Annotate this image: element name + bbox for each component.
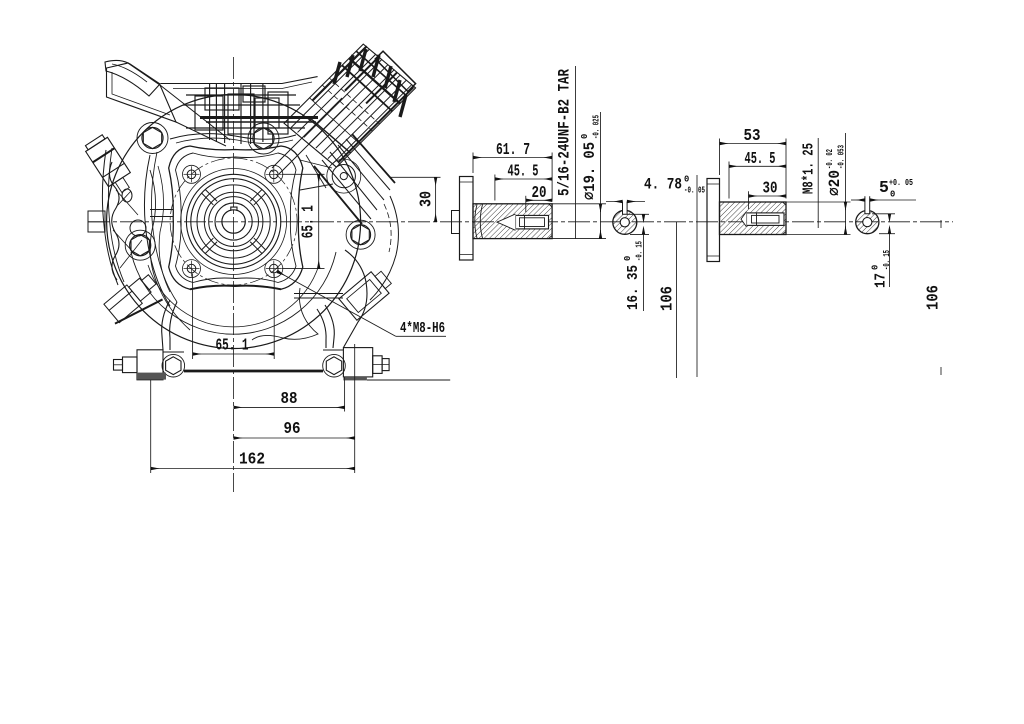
svg-text:5/16-24UNF-B2 TAR: 5/16-24UNF-B2 TAR: [556, 69, 574, 196]
svg-text:-0. 15: -0. 15: [635, 241, 645, 261]
svg-text:96: 96: [284, 419, 301, 438]
svg-text:-0. 053: -0. 053: [837, 145, 847, 169]
svg-text:0: 0: [580, 134, 590, 139]
svg-text:17: 17: [873, 273, 890, 288]
svg-text:0: 0: [623, 256, 633, 261]
svg-text:106: 106: [924, 285, 943, 310]
svg-text:45. 5: 45. 5: [745, 149, 776, 168]
svg-text:-0. 02: -0. 02: [825, 149, 835, 169]
svg-text:30: 30: [418, 191, 437, 207]
svg-text:⌀20: ⌀20: [826, 170, 844, 196]
svg-text:53: 53: [744, 126, 761, 145]
svg-text:45. 5: 45. 5: [508, 162, 539, 181]
svg-text:20: 20: [532, 183, 547, 202]
svg-text:88: 88: [281, 389, 298, 408]
svg-text:0: 0: [871, 265, 881, 270]
svg-text:65. 1: 65. 1: [216, 336, 249, 355]
svg-text:162: 162: [239, 450, 265, 469]
svg-text:61. 7: 61. 7: [496, 140, 530, 159]
svg-text:106: 106: [658, 286, 677, 311]
svg-text:0: 0: [684, 175, 689, 185]
svg-text:65. 1: 65. 1: [299, 205, 318, 238]
svg-text:0: 0: [890, 190, 895, 200]
svg-text:4*M8-H6: 4*M8-H6: [400, 321, 445, 337]
svg-text:⌀19. 05: ⌀19. 05: [581, 142, 599, 200]
svg-text:+0. 05: +0. 05: [889, 178, 913, 188]
svg-text:-0. 025: -0. 025: [592, 115, 602, 139]
svg-text:4. 78: 4. 78: [644, 176, 682, 194]
svg-text:M8*1. 25: M8*1. 25: [801, 143, 818, 194]
svg-text:5: 5: [879, 178, 889, 197]
svg-text:30: 30: [763, 179, 778, 198]
svg-text:-0. 05: -0. 05: [684, 186, 705, 196]
svg-text:16. 35: 16. 35: [625, 265, 642, 310]
svg-text:-0. 15: -0. 15: [882, 250, 892, 270]
